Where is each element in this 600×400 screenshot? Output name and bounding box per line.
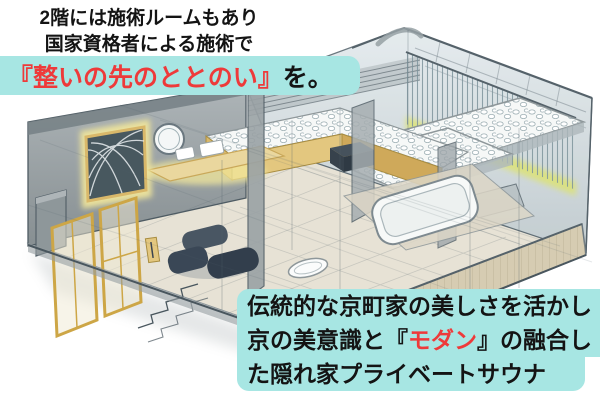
lattice-window bbox=[80, 119, 152, 209]
promo-image: 2階には施術ルームもあり 国家資格者による施術で 『整いの先のととのい』を。 伝… bbox=[0, 0, 600, 400]
bottom-caption-line3: た隠れ家プライベートサウナ bbox=[237, 357, 585, 391]
bottom-line2-pre: 京の美意識と『 bbox=[247, 327, 408, 353]
bottom-line2-red: モダン bbox=[408, 327, 477, 353]
bottom-line2-post: 』の融合し bbox=[477, 327, 592, 353]
top-caption-highlight-black: を。 bbox=[283, 58, 333, 94]
top-caption-highlight-red: 『整いの先のととのい』 bbox=[8, 58, 283, 94]
top-caption-line2: 国家資格者による施術で bbox=[45, 32, 253, 58]
top-caption-line1: 2階には施術ルームもあり bbox=[40, 6, 259, 32]
bottom-caption-line2: 京の美意識と『モダン』の融合し bbox=[237, 323, 600, 357]
top-caption-highlight: 『整いの先のととのい』を。 bbox=[0, 56, 360, 95]
top-caption-bubble: 2階には施術ルームもあり 国家資格者による施術で bbox=[36, 3, 262, 60]
bottom-caption-line1: 伝統的な京町家の美しさを活かし bbox=[237, 289, 600, 323]
bottom-caption: 伝統的な京町家の美しさを活かし 京の美意識と『モダン』の融合し た隠れ家プライベ… bbox=[237, 289, 600, 391]
